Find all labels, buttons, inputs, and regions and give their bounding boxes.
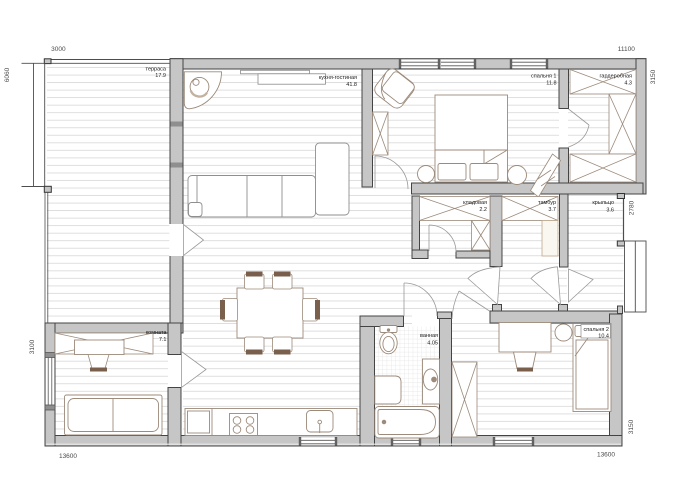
svg-text:спальня 2: спальня 2 xyxy=(584,327,609,333)
svg-text:гардеробная: гардеробная xyxy=(600,74,633,80)
svg-text:6060: 6060 xyxy=(4,67,11,82)
svg-text:терраса: терраса xyxy=(145,67,166,73)
svg-text:3100: 3100 xyxy=(29,339,36,354)
svg-text:41.8: 41.8 xyxy=(346,82,357,88)
svg-text:ванная: ванная xyxy=(420,333,438,339)
svg-text:10.4: 10.4 xyxy=(598,334,609,340)
svg-text:7.1: 7.1 xyxy=(159,337,167,343)
svg-text:3.7: 3.7 xyxy=(548,207,556,213)
svg-text:2.2: 2.2 xyxy=(479,207,487,213)
svg-text:спальня 1: спальня 1 xyxy=(531,74,556,80)
svg-text:2780: 2780 xyxy=(629,200,636,215)
svg-text:тамбур: тамбур xyxy=(538,200,556,206)
svg-text:3150: 3150 xyxy=(628,419,635,434)
svg-text:4.05: 4.05 xyxy=(427,341,438,347)
svg-text:11.8: 11.8 xyxy=(546,81,556,87)
svg-text:17.9: 17.9 xyxy=(155,73,166,79)
svg-text:3.6: 3.6 xyxy=(606,208,614,214)
svg-text:11100: 11100 xyxy=(618,46,635,53)
svg-text:кухня-гостиная: кухня-гостиная xyxy=(319,75,357,81)
svg-text:комната: комната xyxy=(146,330,168,336)
svg-text:3150: 3150 xyxy=(650,69,657,84)
svg-text:13600: 13600 xyxy=(59,453,77,460)
svg-text:13600: 13600 xyxy=(597,452,615,459)
svg-text:3000: 3000 xyxy=(51,46,66,53)
svg-text:кладовая: кладовая xyxy=(463,200,487,206)
svg-text:крыльцо: крыльцо xyxy=(592,200,614,206)
svg-text:4.3: 4.3 xyxy=(624,81,632,87)
